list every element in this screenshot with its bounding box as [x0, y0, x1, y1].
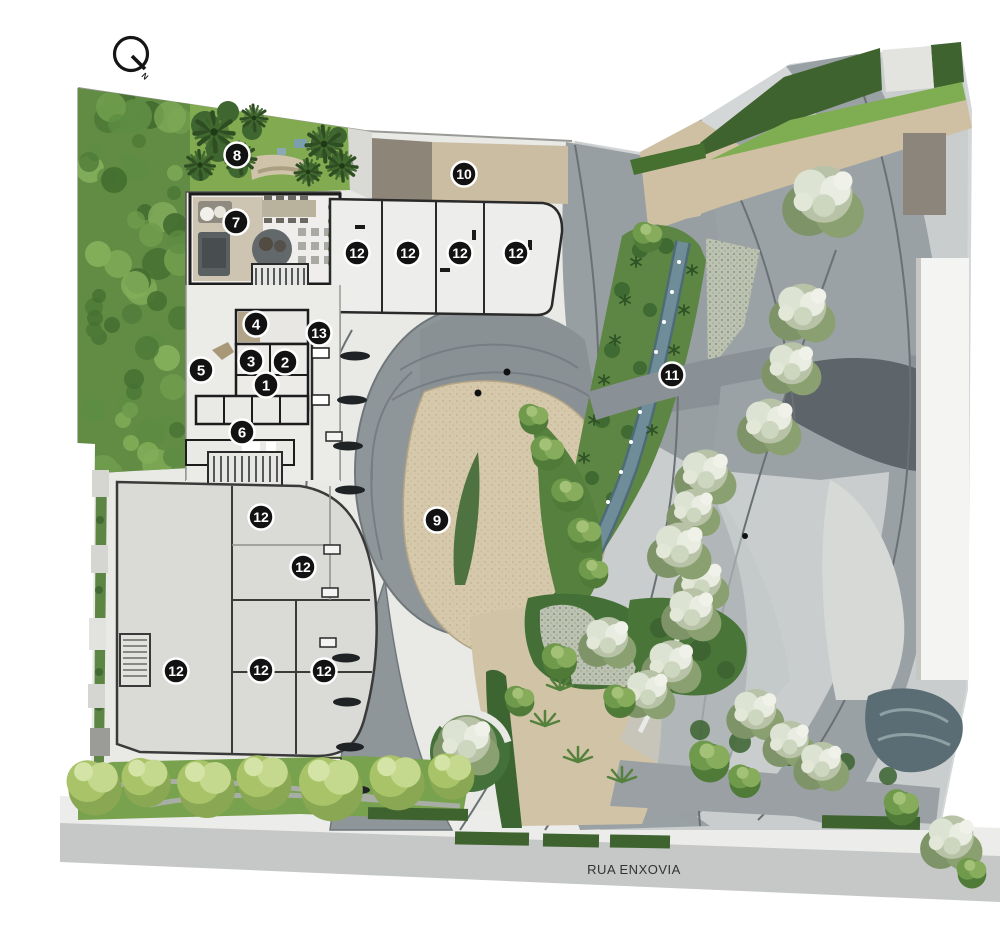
svg-text:12: 12	[400, 245, 416, 261]
svg-text:12: 12	[253, 662, 269, 678]
svg-text:12: 12	[508, 245, 524, 261]
svg-text:RUA ENXOVIA: RUA ENXOVIA	[587, 862, 681, 877]
svg-text:10: 10	[456, 166, 472, 182]
svg-text:12: 12	[452, 245, 468, 261]
svg-text:9: 9	[433, 513, 441, 530]
svg-text:7: 7	[232, 215, 240, 232]
svg-text:6: 6	[238, 425, 246, 442]
svg-text:12: 12	[316, 663, 332, 679]
svg-text:4: 4	[252, 317, 261, 334]
svg-text:12: 12	[295, 559, 311, 575]
svg-text:5: 5	[197, 363, 205, 380]
svg-text:2: 2	[281, 355, 289, 372]
svg-text:1: 1	[262, 378, 270, 395]
svg-text:12: 12	[349, 245, 365, 261]
svg-text:12: 12	[253, 509, 269, 525]
svg-text:8: 8	[233, 148, 241, 165]
svg-text:11: 11	[665, 367, 680, 383]
svg-text:13: 13	[311, 325, 327, 341]
svg-text:12: 12	[168, 663, 184, 679]
svg-text:3: 3	[247, 354, 255, 371]
